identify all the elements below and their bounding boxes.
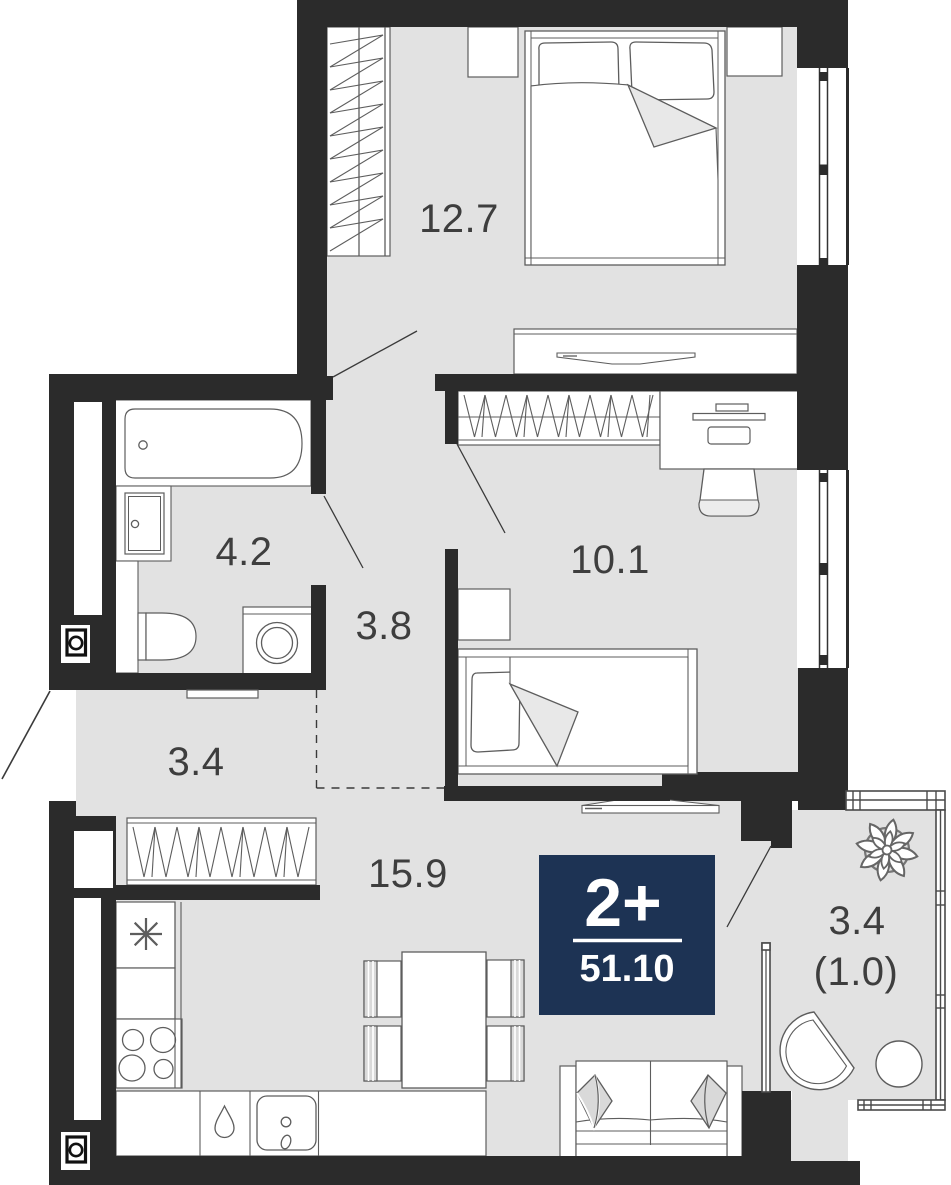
svg-text:3.4: 3.4 (828, 899, 885, 943)
svg-text:4.2: 4.2 (215, 530, 272, 574)
svg-text:2+: 2+ (584, 865, 662, 941)
svg-text:(1.0): (1.0) (814, 950, 899, 994)
svg-text:15.9: 15.9 (368, 852, 448, 896)
svg-text:10.1: 10.1 (570, 538, 650, 582)
svg-text:3.4: 3.4 (167, 740, 224, 784)
svg-text:51.10: 51.10 (579, 948, 674, 990)
svg-text:12.7: 12.7 (419, 197, 499, 241)
svg-text:3.8: 3.8 (355, 604, 412, 648)
